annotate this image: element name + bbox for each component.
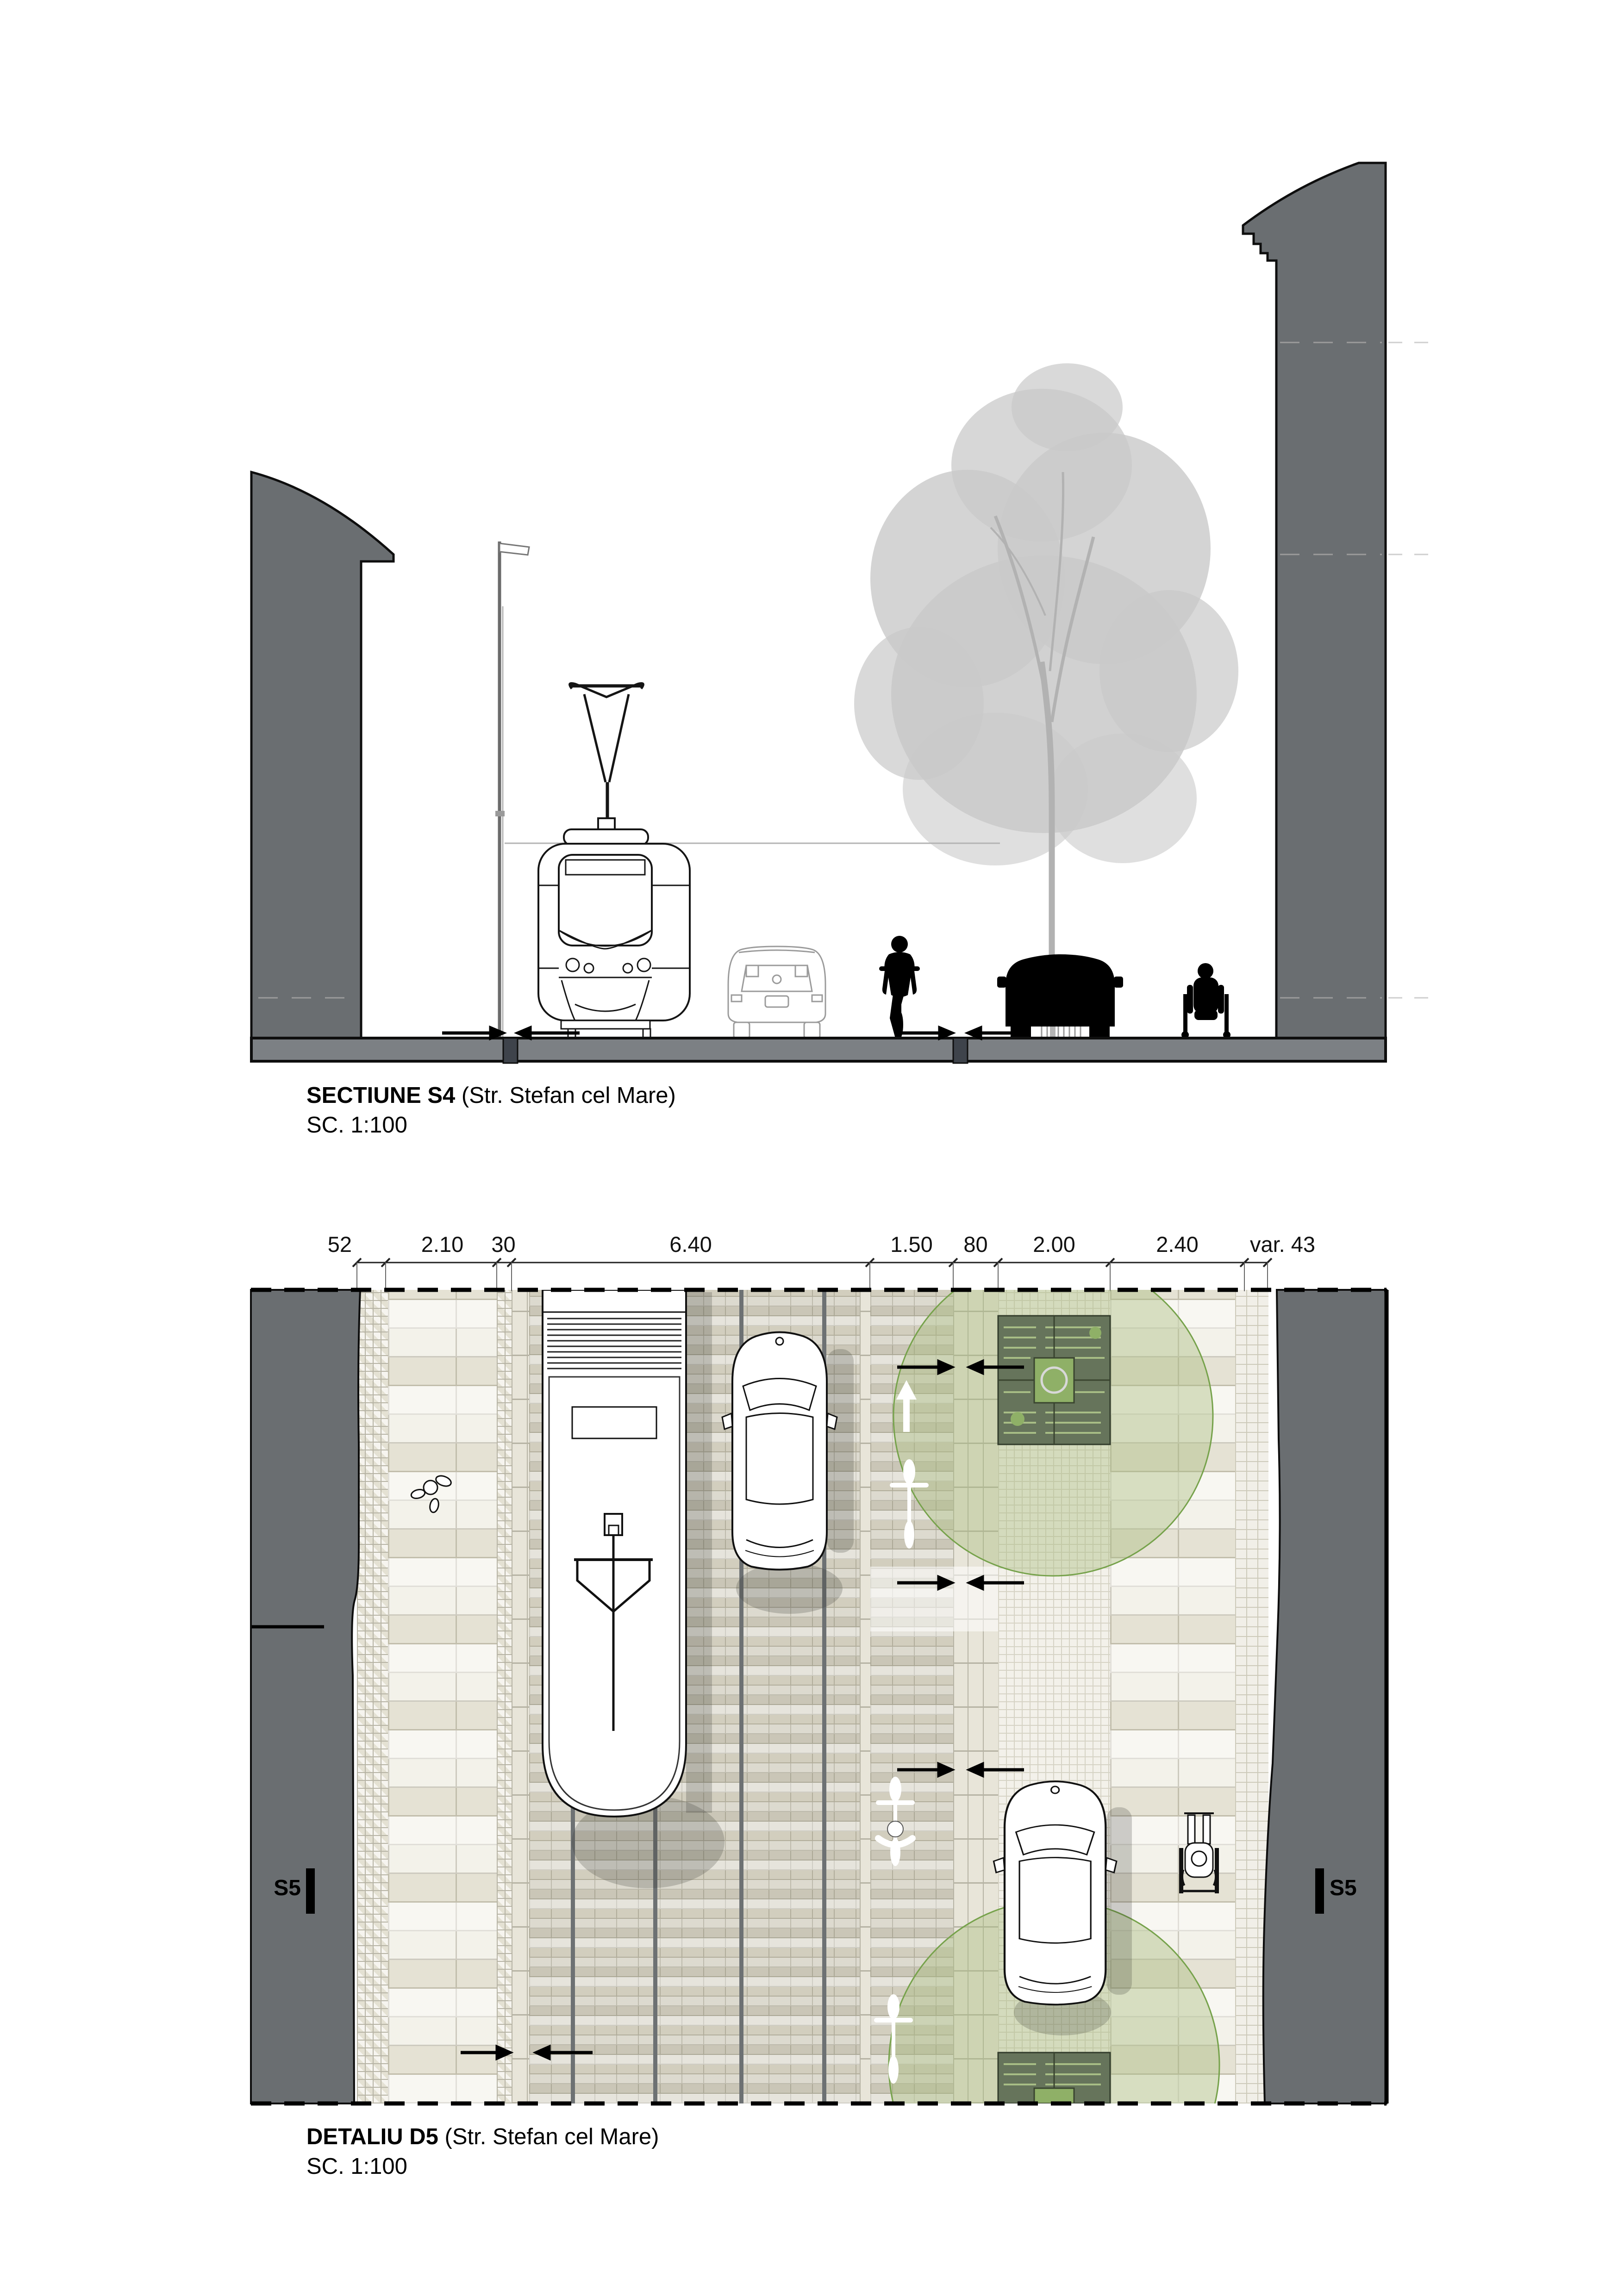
level-guides bbox=[1388, 342, 1440, 998]
dimension-label: 52 bbox=[301, 1233, 352, 1257]
tram-icon bbox=[543, 1290, 686, 1817]
car-shadow bbox=[1106, 1807, 1132, 1995]
section-scale-note: SC. 1:100 bbox=[306, 1110, 676, 1140]
dimension-label: 1.50 bbox=[870, 1233, 953, 1257]
dimension-line bbox=[353, 1258, 1272, 1291]
tree-grate-icon bbox=[998, 2053, 1110, 2103]
dimension-label: 6.40 bbox=[512, 1233, 870, 1257]
detail-title-bold: DETALIU D5 bbox=[306, 2124, 438, 2149]
drawing-sheet: S5 S5 SECTIUNE S4 (Str. Stefan cel Mare)… bbox=[0, 0, 1624, 2296]
wheelchair-icon bbox=[1181, 963, 1230, 1039]
section-left-building bbox=[251, 472, 394, 1038]
rail-drain-cut bbox=[503, 1038, 518, 1063]
cyclist-icon bbox=[879, 936, 920, 1039]
wheelchair-icon bbox=[1179, 1813, 1219, 1893]
tram-roof-hatch bbox=[572, 1407, 656, 1438]
tree-grate-icon bbox=[998, 1316, 1110, 1444]
drawing-art: S5 S5 bbox=[0, 0, 1624, 2296]
car-icon bbox=[722, 1332, 837, 1570]
rail-drain-cut bbox=[953, 1038, 968, 1063]
pedestrian-icon bbox=[410, 1474, 452, 1513]
detail-scale-note: SC. 1:100 bbox=[306, 2152, 659, 2181]
section-title-bold: SECTIUNE S4 bbox=[306, 1083, 455, 1108]
plan-left-building bbox=[251, 1290, 360, 2103]
arrow-slope-icon bbox=[442, 1028, 1019, 1038]
dimension-label: 80 bbox=[953, 1233, 998, 1257]
section-title: SECTIUNE S4 (Str. Stefan cel Mare) SC. 1… bbox=[306, 1081, 676, 1140]
tram-shadow bbox=[686, 1292, 712, 1813]
section-marker-label: S5 bbox=[1330, 1876, 1357, 1900]
car-icon bbox=[993, 1781, 1116, 2004]
suv-icon bbox=[997, 954, 1123, 1038]
detail-title-rest: (Str. Stefan cel Mare) bbox=[438, 2124, 659, 2149]
section-right-building bbox=[1243, 163, 1386, 1038]
plan-art: S5 S5 bbox=[251, 1257, 1387, 2230]
section-marker-label: S5 bbox=[274, 1876, 301, 1900]
dimension-label: var. 43 bbox=[1240, 1233, 1325, 1257]
car-shadow bbox=[827, 1349, 854, 1553]
plan-right-building bbox=[1263, 1290, 1387, 2103]
car-icon bbox=[728, 946, 825, 1038]
tree-icon bbox=[854, 363, 1238, 1038]
dimension-label: 2.00 bbox=[998, 1233, 1110, 1257]
section-title-rest: (Str. Stefan cel Mare) bbox=[455, 1083, 676, 1108]
section-ground bbox=[251, 1038, 1386, 1063]
dimension-label: 2.40 bbox=[1110, 1233, 1244, 1257]
detail-title: DETALIU D5 (Str. Stefan cel Mare) SC. 1:… bbox=[306, 2122, 659, 2181]
tram-icon bbox=[538, 683, 690, 1038]
cyclist-icon bbox=[876, 1777, 915, 1866]
street-lamp-icon bbox=[495, 541, 529, 1038]
car-shadow bbox=[736, 1563, 843, 1614]
section-view bbox=[251, 163, 1440, 1063]
